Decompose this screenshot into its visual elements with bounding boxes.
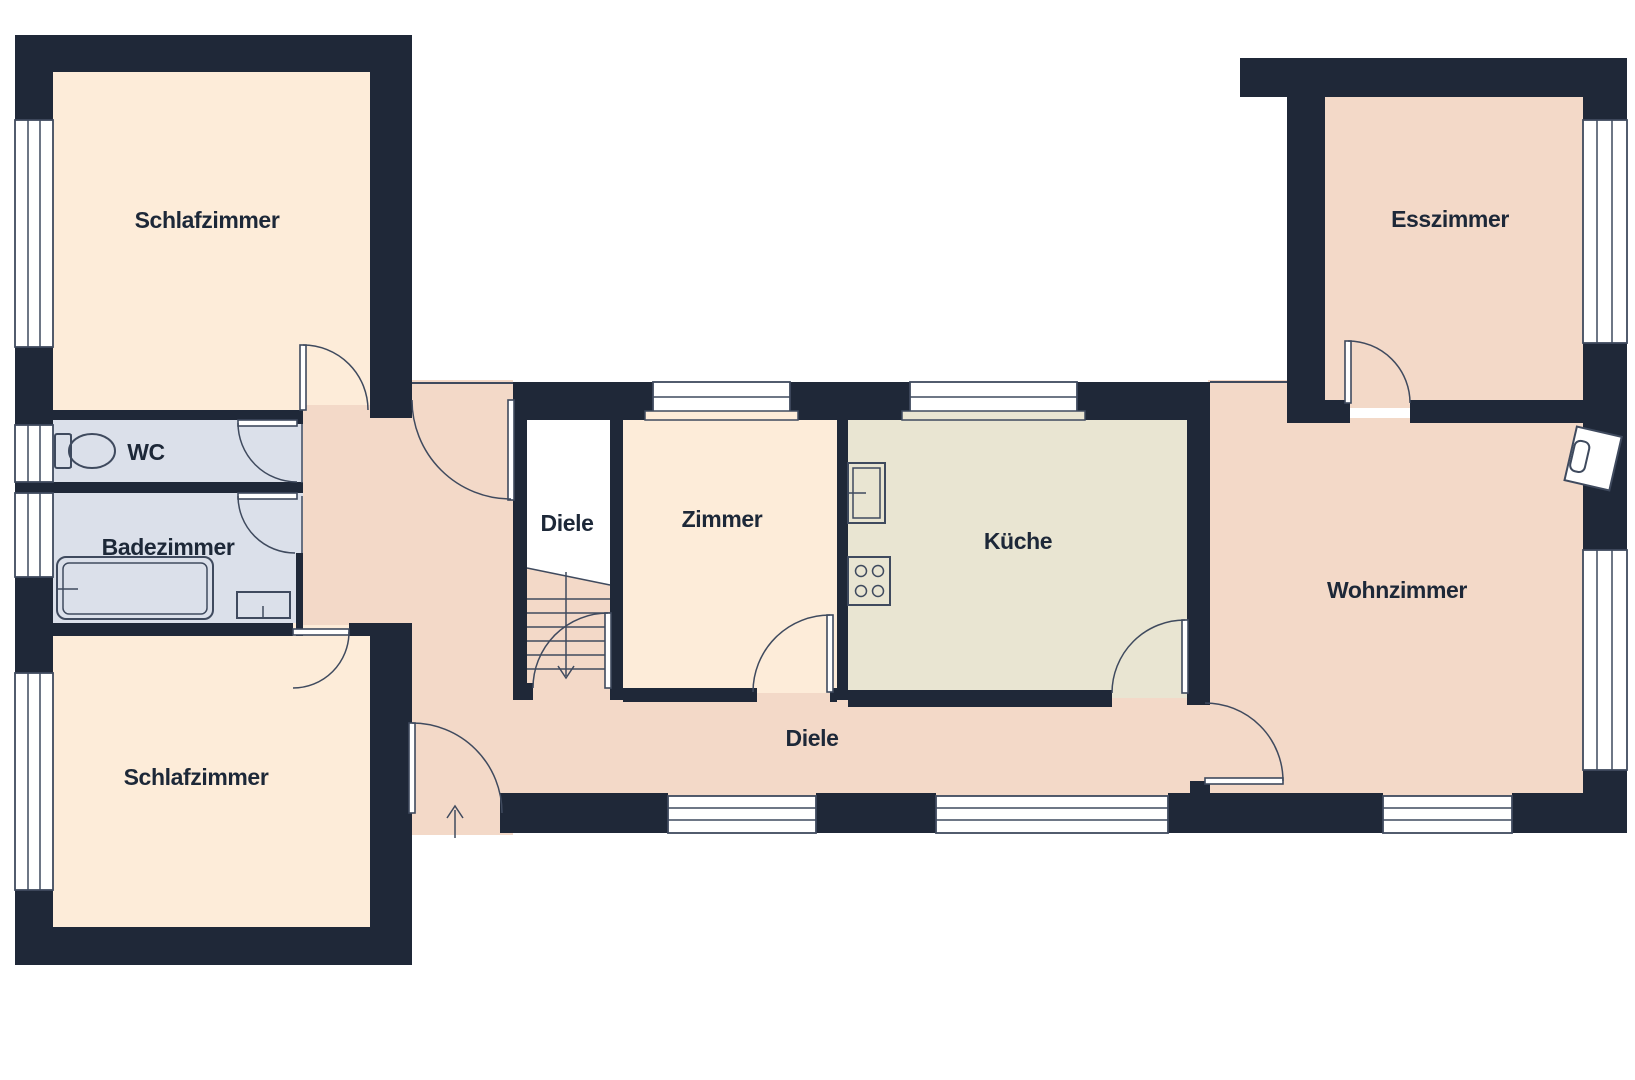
window-schlafzimmer-nw xyxy=(15,120,53,347)
window-kueche xyxy=(902,382,1085,420)
label-kueche: Küche xyxy=(984,528,1052,554)
window-diele-south xyxy=(668,796,816,833)
window-zimmer xyxy=(645,382,798,420)
room-fill-kueche xyxy=(848,418,1192,698)
label-wc: WC xyxy=(127,439,165,465)
stairwell-upper xyxy=(527,418,610,585)
label-badezimmer: Badezimmer xyxy=(102,534,235,560)
label-zimmer: Zimmer xyxy=(682,506,763,532)
window-badezimmer xyxy=(15,493,53,577)
label-schlafzimmer-nw: Schlafzimmer xyxy=(135,207,280,233)
stairwell-lower xyxy=(527,568,610,688)
label-wohnzimmer: Wohnzimmer xyxy=(1327,577,1467,603)
floor-plan: Schlafzimmer WC Badezimmer Schlafzimmer … xyxy=(0,0,1635,1080)
window-wohnzimmer-south xyxy=(1383,796,1512,833)
room-fill-wohnzimmer xyxy=(1210,418,1583,798)
window-wohnzimmer-east xyxy=(1583,550,1627,770)
doorway-to-wohnzimmer xyxy=(1192,700,1212,785)
window-esszimmer xyxy=(1583,120,1627,343)
opening-north-wohnzimmer xyxy=(1208,380,1288,420)
room-fill-zimmer xyxy=(623,418,837,693)
room-fill-esszimmer xyxy=(1325,97,1583,408)
label-diele-flur: Diele xyxy=(786,725,839,751)
hall-floor-west xyxy=(303,405,370,625)
label-diele-treppe: Diele xyxy=(541,510,594,536)
window-corridor-south xyxy=(936,796,1168,833)
label-esszimmer: Esszimmer xyxy=(1391,206,1509,232)
window-schlafzimmer-sw xyxy=(15,673,53,890)
label-schlafzimmer-sw: Schlafzimmer xyxy=(124,764,269,790)
room-fill-schlafzimmer-nw xyxy=(53,72,370,419)
window-wc xyxy=(15,425,53,482)
